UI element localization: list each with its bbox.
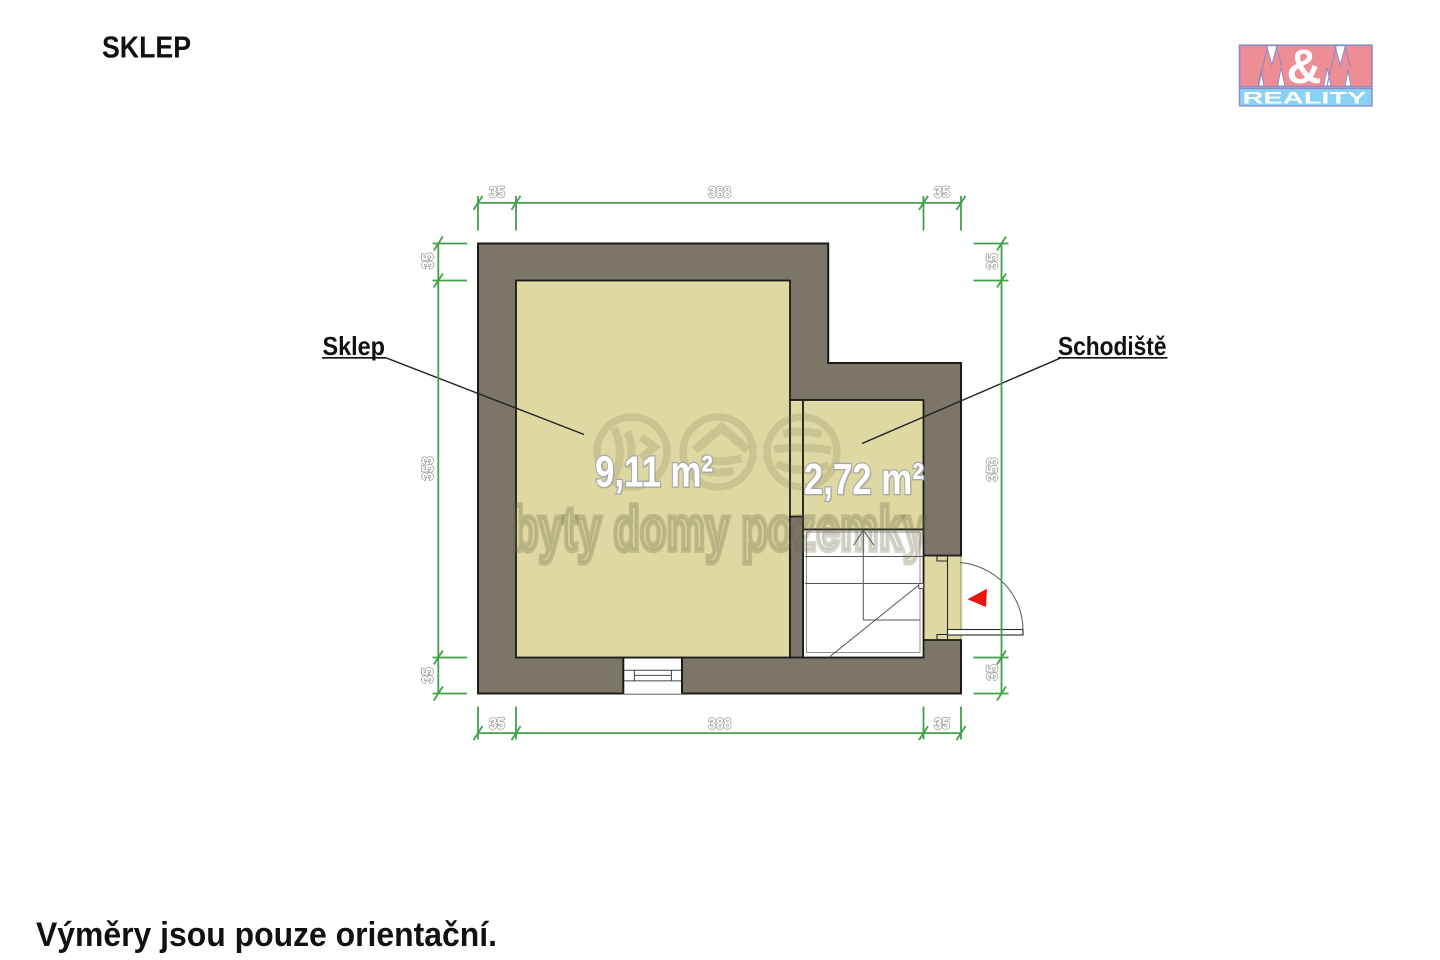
svg-text:388: 388	[708, 185, 731, 202]
svg-text:REALITY: REALITY	[1243, 89, 1368, 108]
svg-text:2,72 m²: 2,72 m²	[804, 455, 924, 504]
svg-text:9,11 m²: 9,11 m²	[595, 448, 713, 497]
svg-text:35: 35	[985, 253, 1002, 269]
svg-text:35: 35	[489, 185, 505, 202]
svg-text:&: &	[1287, 41, 1322, 94]
svg-text:353: 353	[985, 457, 1002, 481]
svg-text:35: 35	[489, 716, 505, 733]
svg-text:353: 353	[420, 456, 437, 480]
svg-text:SKLEP: SKLEP	[102, 30, 191, 65]
svg-text:35: 35	[420, 253, 437, 269]
svg-text:Schodiště: Schodiště	[1058, 331, 1167, 361]
svg-text:35: 35	[985, 664, 1002, 680]
svg-text:35: 35	[420, 667, 437, 683]
svg-text:Výměry jsou pouze orientační.: Výměry jsou pouze orientační.	[36, 916, 497, 954]
svg-text:Sklep: Sklep	[323, 331, 386, 361]
svg-text:35: 35	[934, 185, 950, 202]
svg-text:388: 388	[708, 716, 731, 733]
svg-text:35: 35	[934, 716, 950, 733]
